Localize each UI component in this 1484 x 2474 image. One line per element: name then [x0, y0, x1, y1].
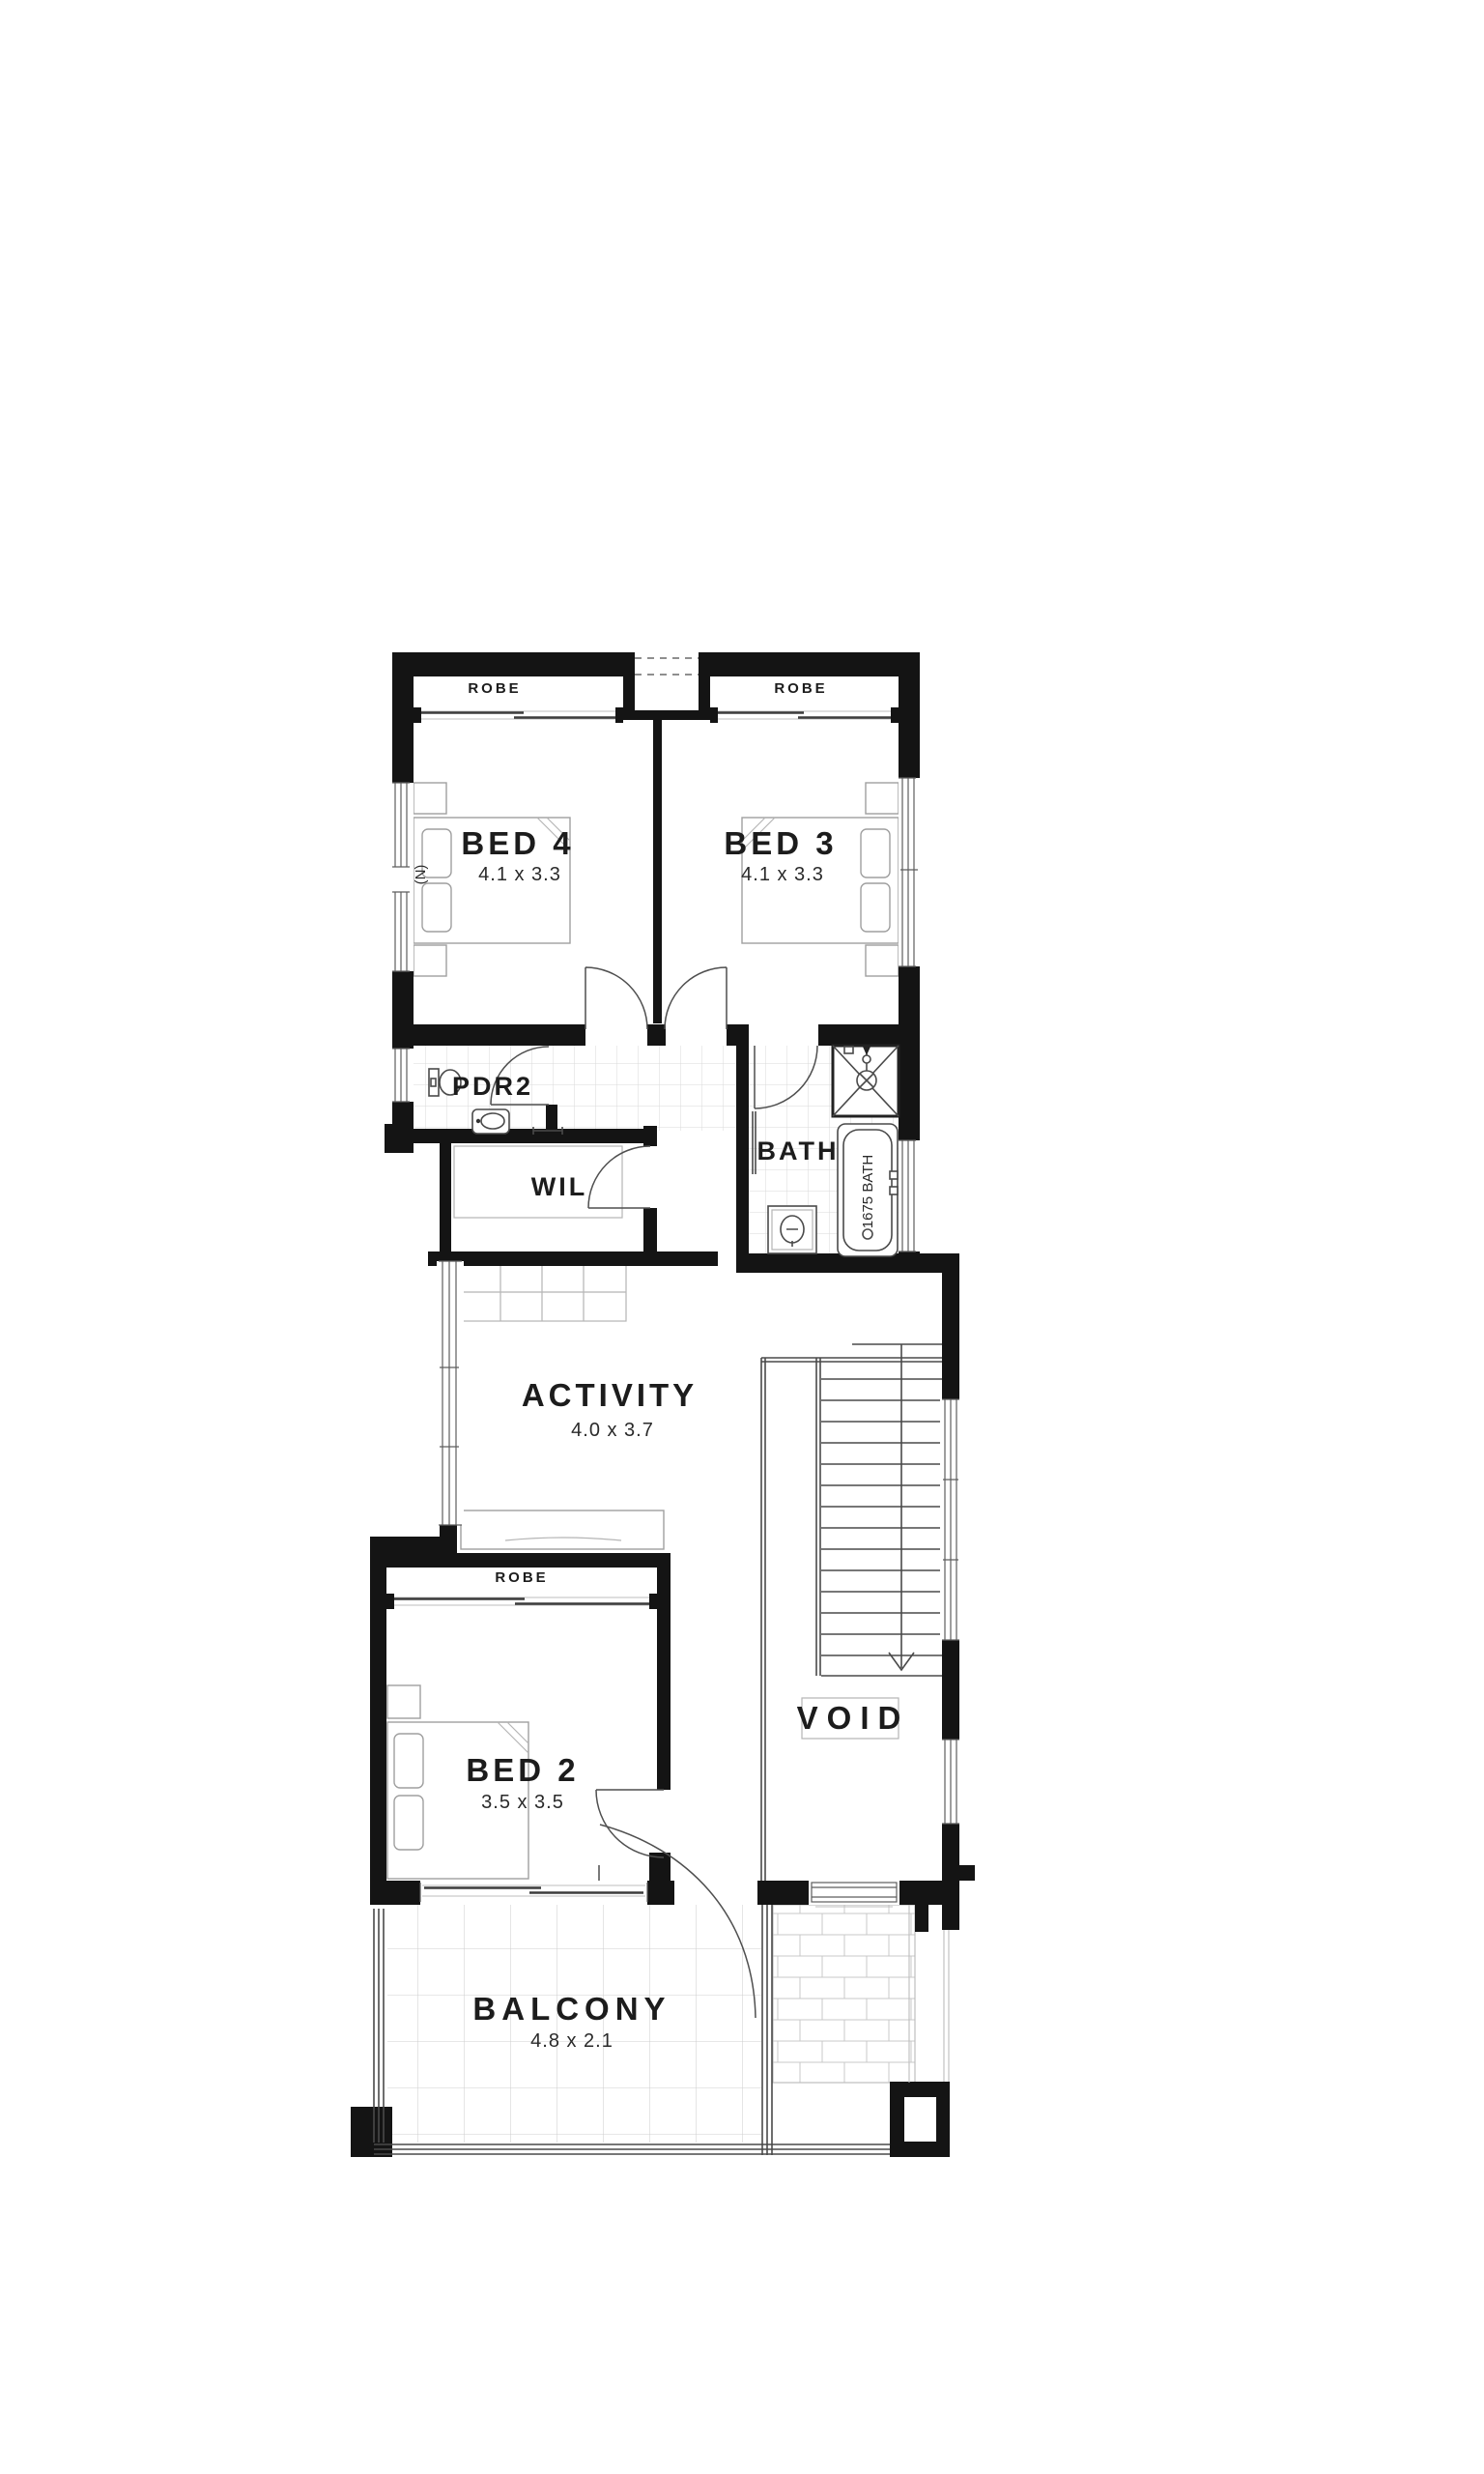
bed3-pillow-1 [861, 829, 890, 877]
activity-window [437, 1261, 464, 1525]
bed4-pillow-2 [422, 883, 451, 932]
bed4-dims: 4.1 x 3.3 [478, 864, 561, 885]
bath-window [899, 1140, 920, 1251]
bed3-side-table-bottom [866, 945, 899, 976]
bed3-pillow-2 [861, 883, 890, 932]
bath-label: BATH [757, 1136, 840, 1165]
bed2-door [596, 1790, 664, 1857]
floor-plan-drawing: ROBE ROBE BED 4 4.1 x 3.3 BED 3 4.1 x 3.… [0, 0, 1484, 2474]
balcony-dims: 4.8 x 2.1 [530, 2030, 614, 2052]
activity-desk [461, 1510, 664, 1549]
bed2-pillow-1 [394, 1734, 423, 1788]
linen-cupboard [459, 1264, 626, 1321]
bed-divider-wall [653, 720, 662, 1023]
stair-landing-edge [761, 1344, 942, 1362]
bed3-side-table-top [866, 783, 899, 814]
bed3-window [899, 778, 920, 966]
bed2-balcony-window [420, 1881, 647, 1905]
stair-window [940, 1399, 961, 1640]
pdr2-label: PDR2 [452, 1072, 533, 1101]
bathtub-size-label: 1675 BATH [860, 1155, 876, 1228]
wil-door [588, 1146, 650, 1208]
staircase [761, 1344, 942, 1881]
void-side-window [940, 1740, 961, 1824]
shower [833, 1046, 899, 1116]
bed2-label: BED 2 [466, 1752, 579, 1788]
bed2-pillow-2 [394, 1796, 423, 1850]
skylight-dashed-outline [635, 658, 699, 675]
activity-dims: 4.0 x 3.7 [571, 1420, 654, 1441]
bed4-door [585, 967, 647, 1029]
bed4-window [392, 783, 414, 971]
bed4-side-table-top [414, 783, 446, 814]
void-balcony-window [809, 1881, 899, 1907]
balcony-label: BALCONY [472, 1991, 671, 2027]
bed4-side-table-bottom [414, 945, 446, 976]
north-window-label: (N) [413, 865, 429, 885]
stair-treads [821, 1379, 942, 1676]
bed2-side-table [387, 1685, 420, 1718]
terrace-bricks [773, 1905, 915, 2083]
balcony-terrace-divider [762, 1905, 772, 2155]
floor-plan-page: ROBE ROBE BED 4 4.1 x 3.3 BED 3 4.1 x 3.… [0, 0, 1484, 2474]
pdr2-window [392, 1049, 414, 1102]
void-edge-line [761, 1358, 765, 1881]
activity-label: ACTIVITY [522, 1377, 698, 1413]
bed4-label: BED 4 [461, 825, 574, 861]
bed3-label: BED 3 [724, 825, 837, 861]
bed3-door [665, 967, 727, 1029]
robe-label-bed4: ROBE [468, 680, 521, 697]
balcony-balustrade-bottom [374, 2144, 890, 2154]
bed2-dims: 3.5 x 3.5 [481, 1792, 564, 1813]
bath-vanity [768, 1206, 816, 1253]
pdr2-basin [472, 1109, 509, 1134]
stair-rail [816, 1358, 820, 1676]
robe-label-bed2: ROBE [495, 1569, 548, 1586]
robe-label-bed3: ROBE [774, 680, 827, 697]
wil-label: WIL [531, 1172, 587, 1201]
void-label: VOID [797, 1700, 910, 1736]
bed3-dims: 4.1 x 3.3 [741, 864, 824, 885]
